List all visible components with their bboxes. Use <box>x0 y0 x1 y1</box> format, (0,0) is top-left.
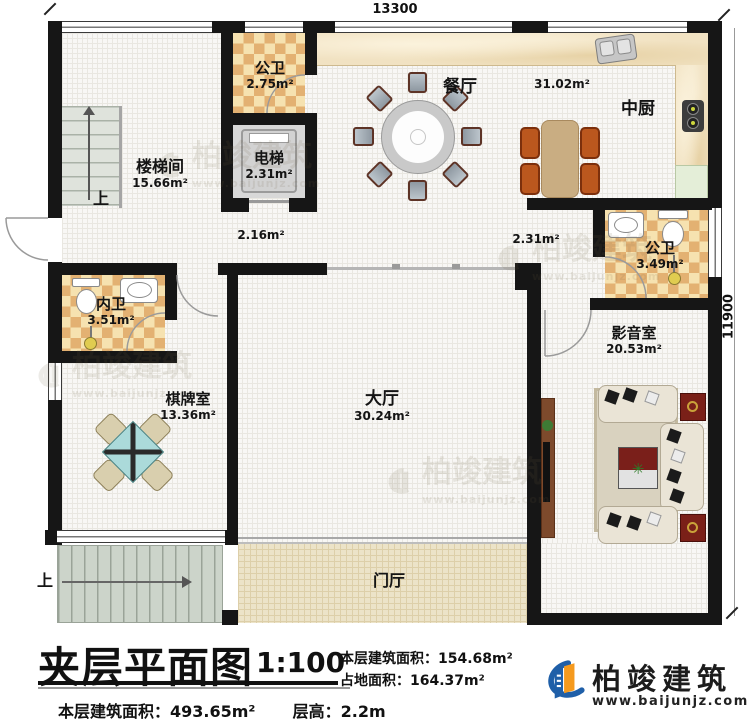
room-label-card: 棋牌室 13.36m² <box>148 391 228 422</box>
room-label-kitchen: 中厨 <box>610 100 666 119</box>
room-label-foyer: 门厅 <box>360 572 418 590</box>
plan-title: 夹层平面图 <box>38 634 253 695</box>
dimension-top: 13300 <box>355 2 435 17</box>
dimension-right: 11900 <box>722 287 737 347</box>
room-label-bathroom-inner: 内卫 3.51m² <box>78 296 144 327</box>
room-label-stairwell: 楼梯间 15.66m² <box>116 158 204 190</box>
land-area-line: 占地面积：164.37m² <box>340 670 485 690</box>
title-underline-2 <box>38 687 350 689</box>
plan-scale: 1:100 <box>256 646 345 679</box>
room-label-elevator: 电梯 2.31m² <box>240 150 298 181</box>
area-label-dining-kitchen: 31.02m² <box>528 77 596 91</box>
company-website: www.baijunjz.com <box>592 694 749 709</box>
room-label-media: 影音室 20.53m² <box>598 325 670 356</box>
area-label-corridor-right: 2.31m² <box>504 232 568 246</box>
room-label-bathroom-top: 公卫 2.75m² <box>238 60 302 91</box>
title-underline <box>38 681 338 685</box>
company-logo-icon <box>536 658 588 712</box>
area-label-corridor-left: 2.16m² <box>230 228 292 242</box>
stair-up-label-bottom: 上 <box>34 572 56 590</box>
level-area-line: 本层建筑面积：493.65m² 层高：2.2m <box>58 698 386 722</box>
room-label-dining: 餐厅 <box>430 78 490 97</box>
floor-area-line: 本层建筑面积：154.68m² <box>340 648 513 668</box>
company-name: 柏竣建筑 <box>592 656 732 698</box>
floor-plan-page: 柏竣建筑www.baijunjz.com 柏竣建筑www.baijunjz.co… <box>0 0 750 728</box>
room-label-bathroom-right: 公卫 3.49m² <box>628 240 692 271</box>
stair-up-label-top: 上 <box>90 190 112 208</box>
room-label-hall: 大厅 30.24m² <box>350 390 414 423</box>
